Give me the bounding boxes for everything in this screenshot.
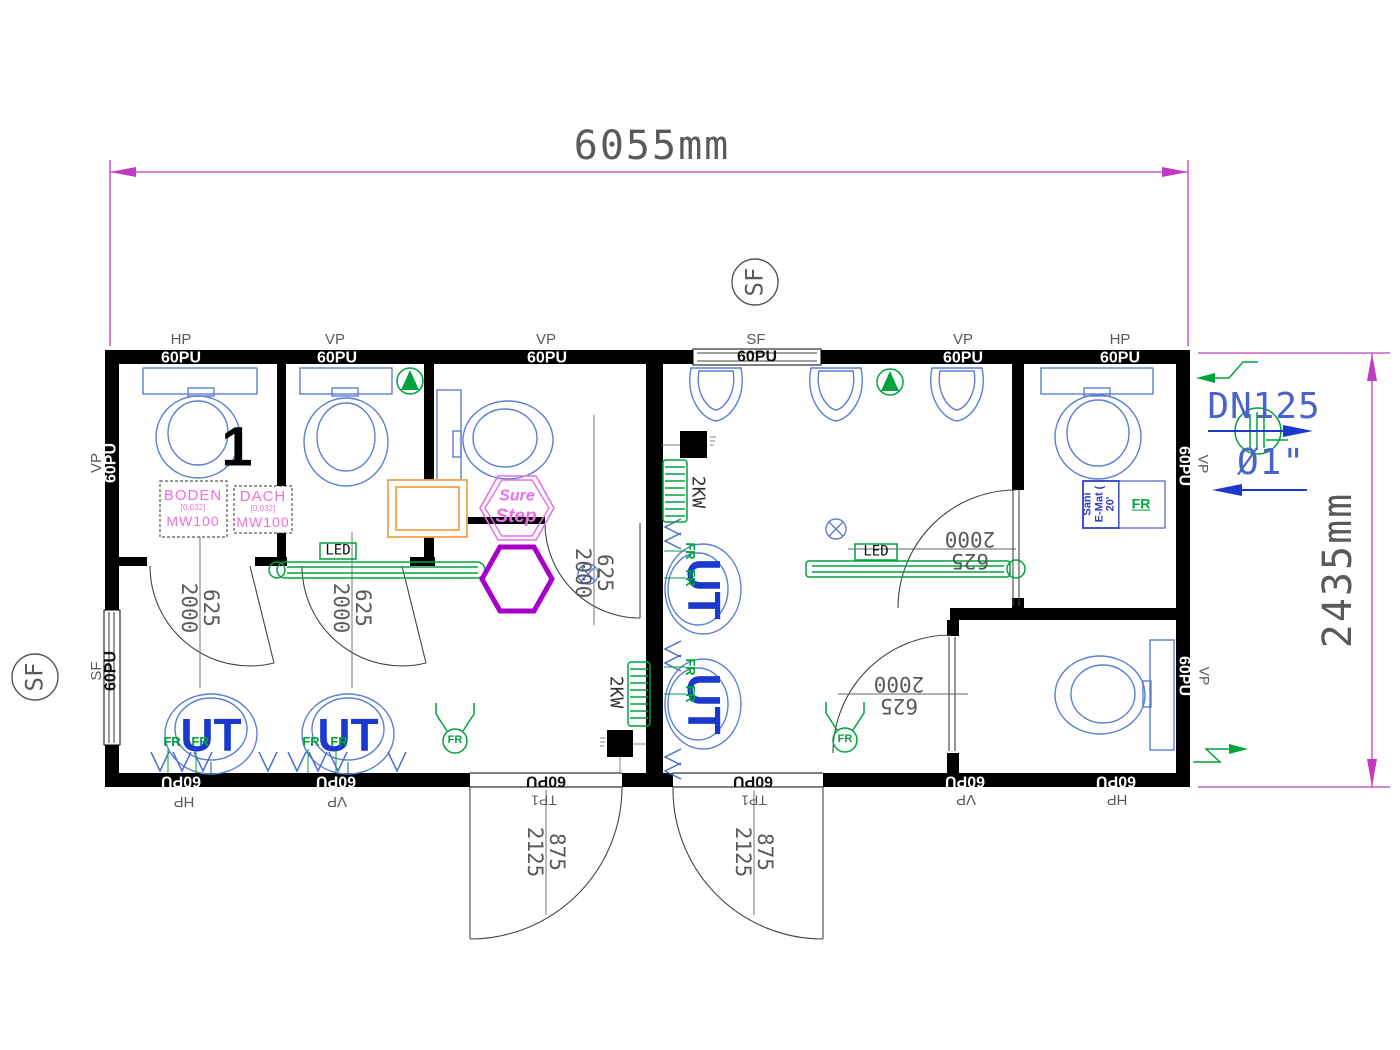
bottom-60pu-3: 60PU xyxy=(526,772,566,789)
entry-dim-2: 8752125 xyxy=(732,827,776,878)
left-60pu-2: 60PU xyxy=(104,651,121,691)
fr-6: FR xyxy=(683,569,697,586)
fr-sani: FR xyxy=(1132,497,1151,512)
overall-width-dimension: 6055mm xyxy=(574,125,731,167)
water-pipe-label: Ø1" xyxy=(1237,444,1305,482)
top-60pu-4: 60PU xyxy=(737,350,777,367)
boden-box: BODEN[0,032]MW100 xyxy=(164,487,222,529)
fr-1: FR xyxy=(163,735,180,749)
floorplan-canvas: 6055mm 2435mm DN125 Ø1" 1 HPVPVPSFVPHP60… xyxy=(0,0,1400,1050)
right-60pu-2: 60PU xyxy=(1175,656,1192,696)
left-60pu-1: 60PU xyxy=(104,443,121,483)
top-vp-2: VP xyxy=(536,332,556,348)
right-60pu-1: 60PU xyxy=(1175,446,1192,486)
led-label-1: LED xyxy=(325,544,350,559)
sf-marker-top-label: SF xyxy=(742,268,767,297)
sani-box-label: SaniE-Mat (20' xyxy=(1083,486,1118,523)
fr-7: FR xyxy=(683,658,697,675)
fr-sensor-label-1: FR xyxy=(448,735,463,747)
bottom-vp-1: VP xyxy=(327,793,347,809)
bottom-60pu-5: 60PU xyxy=(945,772,985,789)
door-dim-5: 6252000 xyxy=(874,673,925,717)
surestep-line-1: Sure xyxy=(499,489,535,506)
entry-dim-1: 8752125 xyxy=(524,827,568,878)
fr-8: FR xyxy=(683,685,697,702)
urinal-label-2: UT xyxy=(317,711,378,759)
fr-sensor-label-2: FR xyxy=(838,734,853,746)
bottom-60pu-4: 60PU xyxy=(733,772,773,789)
door-dim-2: 6252000 xyxy=(330,583,374,634)
sf-marker-left-label: SF xyxy=(22,663,47,692)
bottom-hp-1: HP xyxy=(174,793,195,809)
led-label-2: LED xyxy=(863,545,888,560)
fr-2: FR xyxy=(191,735,208,749)
bottom-60pu-6: 60PU xyxy=(1096,772,1136,789)
top-vp-1: VP xyxy=(325,332,345,348)
door-dim-3: 6252000 xyxy=(572,548,616,599)
top-60pu-3: 60PU xyxy=(527,351,567,368)
urinal-label-1: UT xyxy=(180,711,241,759)
dimension-lines xyxy=(110,160,1390,787)
bottom-60pu-1: 60PU xyxy=(161,772,201,789)
bottom-vp-2: VP xyxy=(956,791,976,807)
room-number: 1 xyxy=(221,418,252,477)
top-hp-2: HP xyxy=(1110,332,1131,348)
bottom-hp-2: HP xyxy=(1107,791,1128,807)
drain-pipe-label: DN125 xyxy=(1207,388,1320,426)
right-vp-1: VP xyxy=(1196,455,1211,474)
top-vp-3: VP xyxy=(953,332,973,348)
bottom-tp1-1: TP1 xyxy=(531,793,557,808)
top-60pu-6: 60PU xyxy=(1100,351,1140,368)
urinal-label-3: UT xyxy=(680,558,728,619)
urinal-label-4: UT xyxy=(680,673,728,734)
heater-label-2: 2KW xyxy=(688,476,707,509)
fr-3: FR xyxy=(302,735,319,749)
door-dim-4: 6252000 xyxy=(945,528,996,572)
fr-5: FR xyxy=(683,542,697,559)
top-sf: SF xyxy=(746,332,765,348)
top-60pu-1: 60PU xyxy=(161,351,201,368)
door-dim-1: 6252000 xyxy=(178,583,222,634)
bottom-tp1-2: TP1 xyxy=(741,793,767,808)
top-60pu-5: 60PU xyxy=(943,351,983,368)
fr-4: FR xyxy=(330,735,347,749)
surestep-line-2: Step xyxy=(495,507,536,527)
top-hp-1: HP xyxy=(171,332,192,348)
top-60pu-2: 60PU xyxy=(317,351,357,368)
walls xyxy=(105,350,1190,787)
overall-height-dimension: 2435mm xyxy=(1317,492,1359,649)
right-vp-2: VP xyxy=(1197,667,1212,686)
bottom-60pu-2: 60PU xyxy=(316,772,356,789)
dach-box: DACH[0,032]MW100 xyxy=(236,488,289,530)
heater-label-1: 2KW xyxy=(606,676,625,709)
dimension-leaders xyxy=(200,415,1016,915)
